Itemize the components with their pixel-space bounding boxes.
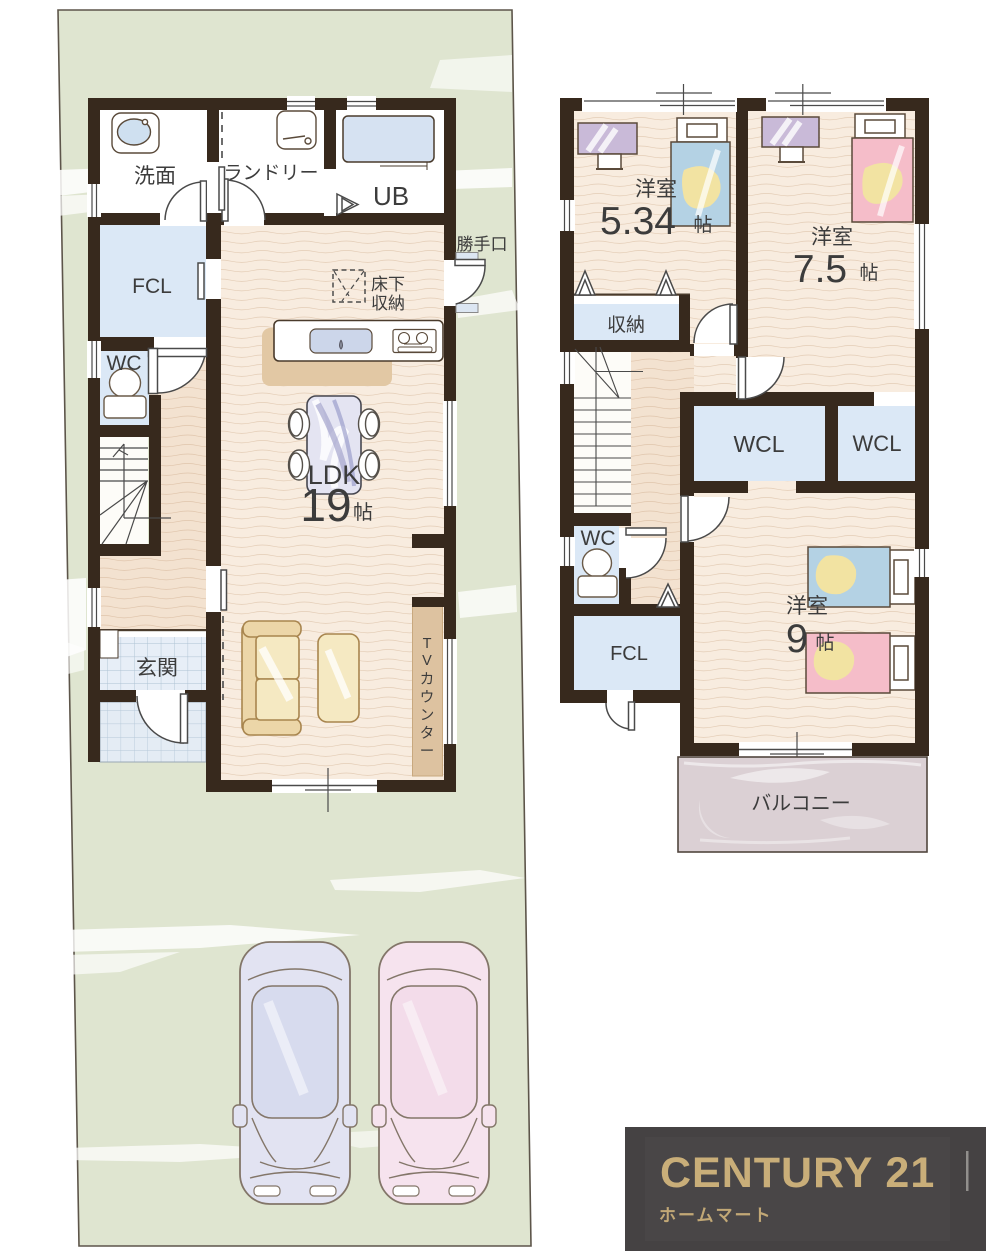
svg-text:WCL: WCL — [853, 431, 902, 456]
svg-text:洋室: 洋室 — [635, 178, 677, 201]
svg-text:帖: 帖 — [693, 214, 712, 236]
svg-text:CENTURY 21: CENTURY 21 — [660, 1149, 935, 1197]
svg-text:19: 19 — [300, 479, 351, 531]
svg-text:FCL: FCL — [610, 643, 648, 665]
svg-text:カ: カ — [420, 672, 435, 688]
svg-text:7.5: 7.5 — [793, 248, 847, 291]
svg-text:床下: 床下 — [371, 275, 405, 294]
svg-text:収納: 収納 — [607, 314, 645, 336]
svg-text:V: V — [422, 653, 432, 669]
svg-text:ランドリー: ランドリー — [223, 163, 318, 184]
svg-text:ウ: ウ — [420, 689, 435, 706]
svg-text:WC: WC — [107, 352, 142, 375]
svg-text:タ: タ — [420, 725, 435, 742]
svg-text:洗面: 洗面 — [134, 165, 176, 188]
svg-text:玄関: 玄関 — [136, 657, 178, 680]
svg-text:ン: ン — [420, 708, 435, 724]
svg-text:バルコニー: バルコニー — [751, 793, 851, 815]
svg-text:ー: ー — [420, 744, 435, 760]
svg-text:帖: 帖 — [815, 632, 834, 654]
svg-text:FCL: FCL — [132, 275, 172, 298]
svg-text:WC: WC — [581, 527, 616, 550]
svg-text:T: T — [423, 636, 432, 652]
svg-text:UB: UB — [373, 181, 409, 211]
svg-text:帖: 帖 — [353, 501, 373, 524]
svg-text:帖: 帖 — [859, 262, 878, 284]
svg-text:収納: 収納 — [371, 294, 405, 313]
svg-text:洋室: 洋室 — [786, 595, 828, 618]
svg-text:勝手口: 勝手口 — [457, 235, 508, 254]
svg-text:洋室: 洋室 — [811, 226, 853, 249]
svg-text:9: 9 — [786, 617, 808, 661]
svg-text:5.34: 5.34 — [600, 200, 676, 243]
svg-text:ホームマート: ホームマート — [659, 1206, 773, 1225]
svg-text:WCL: WCL — [733, 431, 784, 457]
